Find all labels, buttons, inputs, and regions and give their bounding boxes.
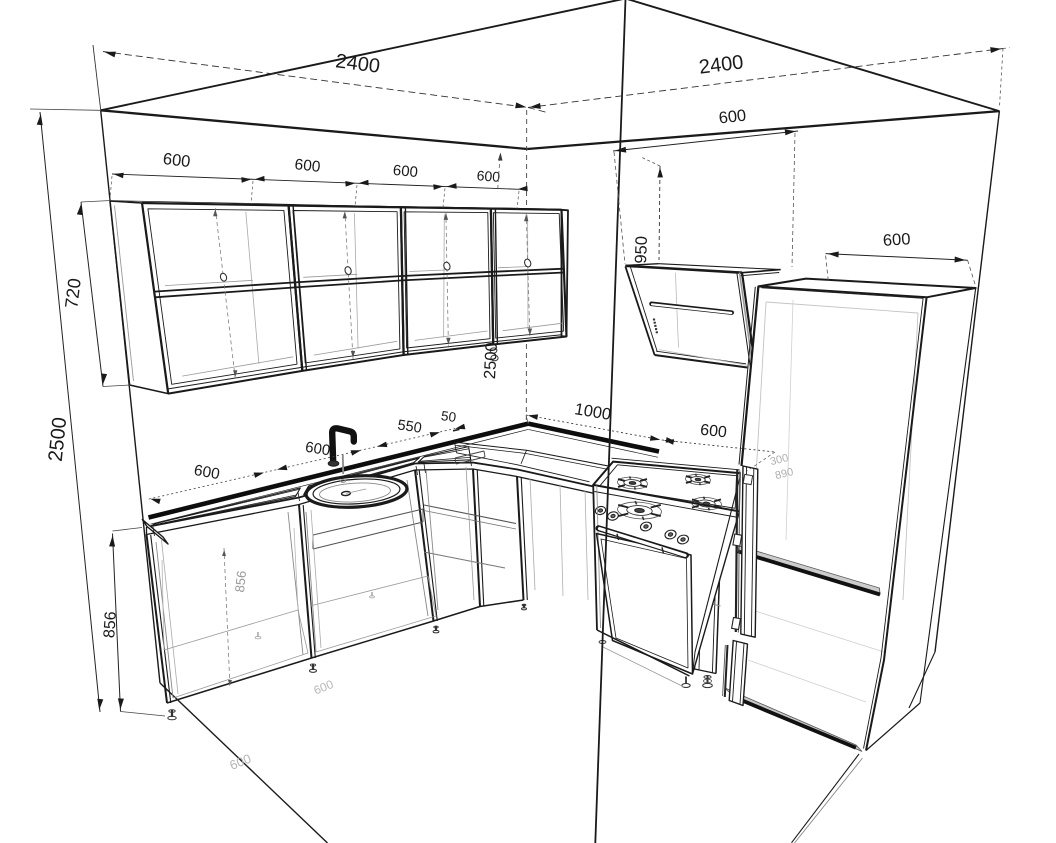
- svg-text:856: 856: [101, 611, 120, 639]
- svg-text:856: 856: [232, 570, 249, 593]
- svg-text:600: 600: [294, 156, 322, 176]
- svg-text:950: 950: [632, 236, 651, 264]
- svg-text:50: 50: [440, 408, 457, 425]
- svg-text:2500: 2500: [45, 416, 72, 463]
- svg-text:600: 600: [162, 150, 192, 171]
- svg-text:600: 600: [718, 107, 747, 128]
- svg-text:720: 720: [61, 277, 85, 309]
- svg-text:600: 600: [392, 162, 418, 181]
- svg-text:600: 600: [699, 422, 727, 442]
- svg-text:600: 600: [882, 230, 911, 250]
- svg-text:600: 600: [476, 167, 501, 185]
- svg-text:2500: 2500: [481, 342, 501, 380]
